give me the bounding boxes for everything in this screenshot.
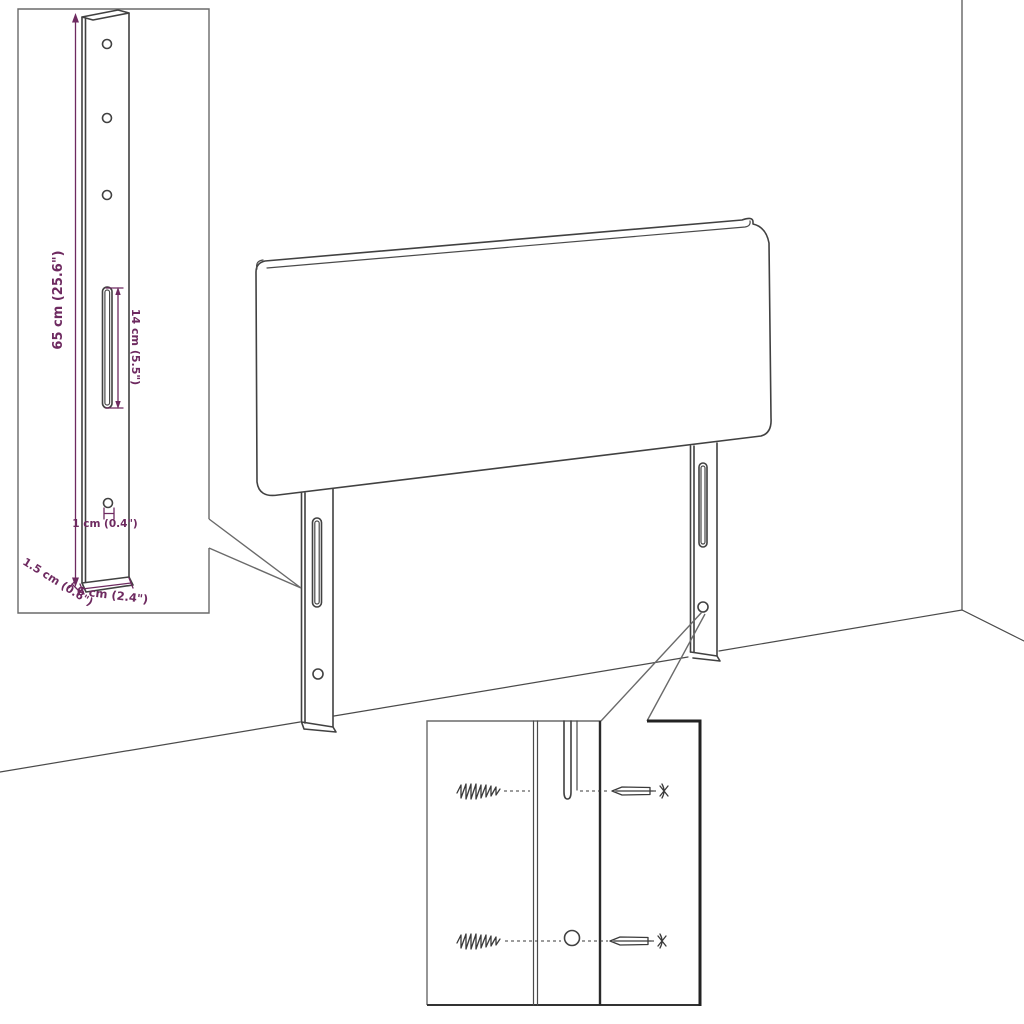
strip-hole — [565, 931, 580, 946]
dimension-label-hole: 1 cm (0.4") — [72, 518, 137, 530]
leg-strip-detail — [534, 721, 601, 1005]
headboard-left-leg — [302, 489, 337, 732]
screw-row-bottom — [457, 934, 666, 949]
bracket-hole-2 — [103, 114, 112, 123]
bolt-screw-icon — [612, 787, 653, 795]
bracket-hole-bottom — [104, 499, 113, 508]
headboard-dimension-diagram: 65 cm (25.6") 14 cm (5.5") 1 cm (0.4") 6… — [0, 0, 1024, 1024]
dimension-label-height: 65 cm (25.6") — [51, 250, 66, 349]
strip-slot — [564, 721, 571, 799]
right-leg-slot — [699, 463, 707, 547]
screw-inset-callout-tail — [601, 612, 705, 721]
wood-screw-icon — [457, 934, 500, 949]
diagram-canvas: 65 cm (25.6") 14 cm (5.5") 1 cm (0.4") 6… — [0, 0, 1024, 1024]
left-leg-slot — [313, 518, 322, 607]
bracket-inset-callout-tail — [209, 519, 301, 588]
bracket-slot — [103, 287, 113, 408]
bolt-screw-icon — [610, 937, 651, 945]
floor-line — [0, 610, 1024, 772]
screw-row-top — [457, 784, 668, 799]
bracket-hole-3 — [103, 191, 112, 200]
bracket-hole-1 — [103, 40, 112, 49]
left-leg-hole — [313, 669, 323, 679]
right-leg-hole — [698, 602, 708, 612]
dimension-label-slot: 14 cm (5.5") — [129, 309, 142, 385]
headboard-right-leg — [691, 443, 721, 661]
headboard-main-view — [256, 218, 771, 732]
bracket-drawing — [82, 10, 133, 592]
wood-screw-icon — [457, 784, 500, 799]
screw-head-icon — [660, 784, 668, 798]
screw-detail-inset — [427, 612, 705, 1006]
screw-head-icon — [658, 934, 666, 948]
